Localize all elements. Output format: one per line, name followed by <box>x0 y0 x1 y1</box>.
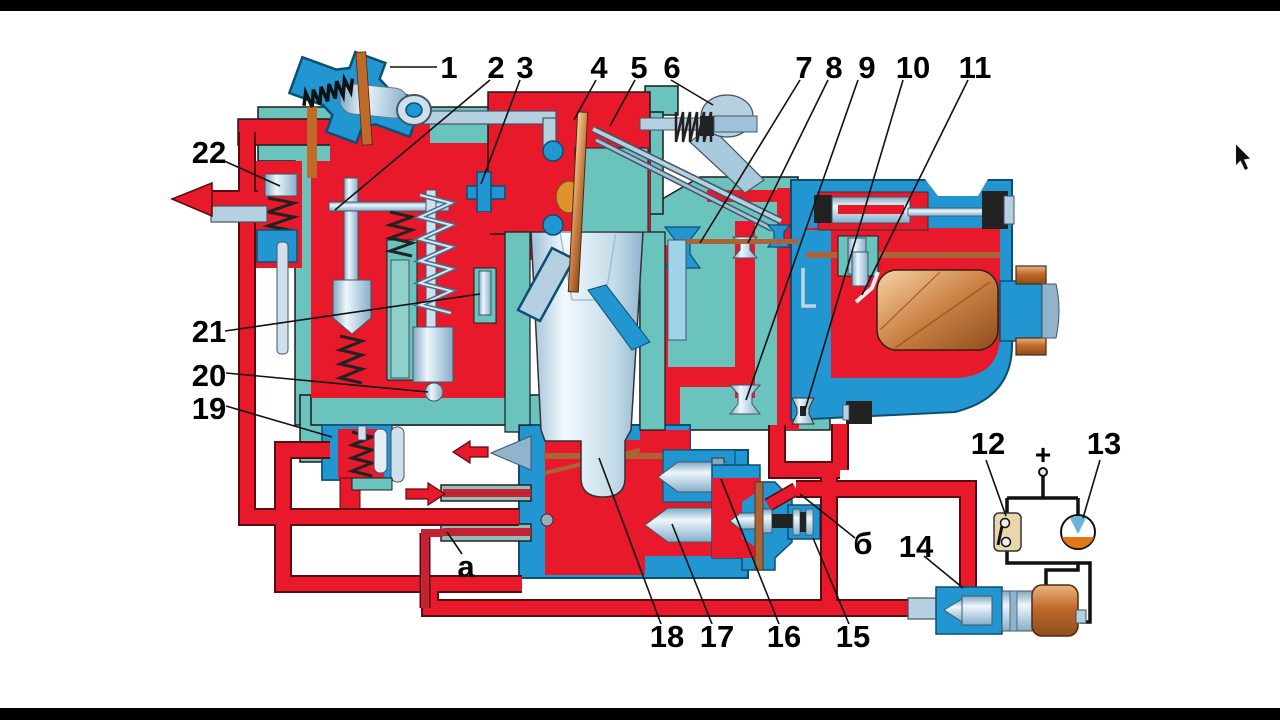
svg-text:5: 5 <box>630 50 647 85</box>
svg-text:19: 19 <box>192 391 226 426</box>
svg-text:16: 16 <box>767 619 801 654</box>
svg-text:21: 21 <box>192 314 226 349</box>
svg-text:а: а <box>457 549 475 584</box>
svg-text:20: 20 <box>192 358 226 393</box>
svg-text:14: 14 <box>899 529 934 564</box>
svg-text:4: 4 <box>590 50 608 85</box>
svg-text:6: 6 <box>663 50 680 85</box>
svg-text:б: б <box>853 526 872 561</box>
svg-text:11: 11 <box>959 50 992 85</box>
svg-text:12: 12 <box>971 426 1005 461</box>
svg-text:8: 8 <box>825 50 842 85</box>
svg-text:15: 15 <box>836 619 870 654</box>
svg-text:17: 17 <box>700 619 734 654</box>
svg-text:7: 7 <box>795 50 812 85</box>
svg-text:3: 3 <box>516 50 533 85</box>
svg-text:22: 22 <box>192 135 226 170</box>
svg-text:18: 18 <box>650 619 684 654</box>
svg-text:9: 9 <box>858 50 875 85</box>
svg-text:10: 10 <box>896 50 930 85</box>
svg-text:1: 1 <box>440 50 457 85</box>
svg-text:2: 2 <box>487 50 504 85</box>
svg-text:+: + <box>1035 439 1051 470</box>
svg-text:13: 13 <box>1087 426 1121 461</box>
